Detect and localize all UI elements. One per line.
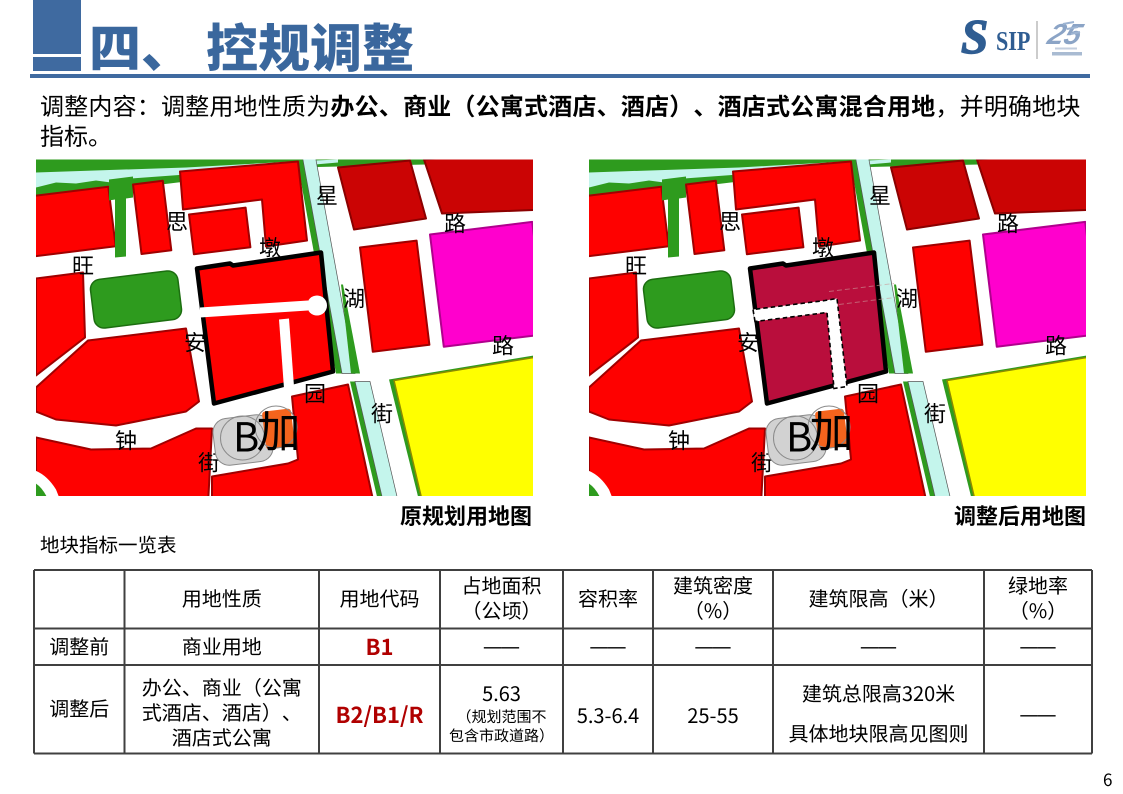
svg-text:SIP: SIP: [996, 27, 1030, 57]
svg-text:S: S: [961, 9, 988, 64]
